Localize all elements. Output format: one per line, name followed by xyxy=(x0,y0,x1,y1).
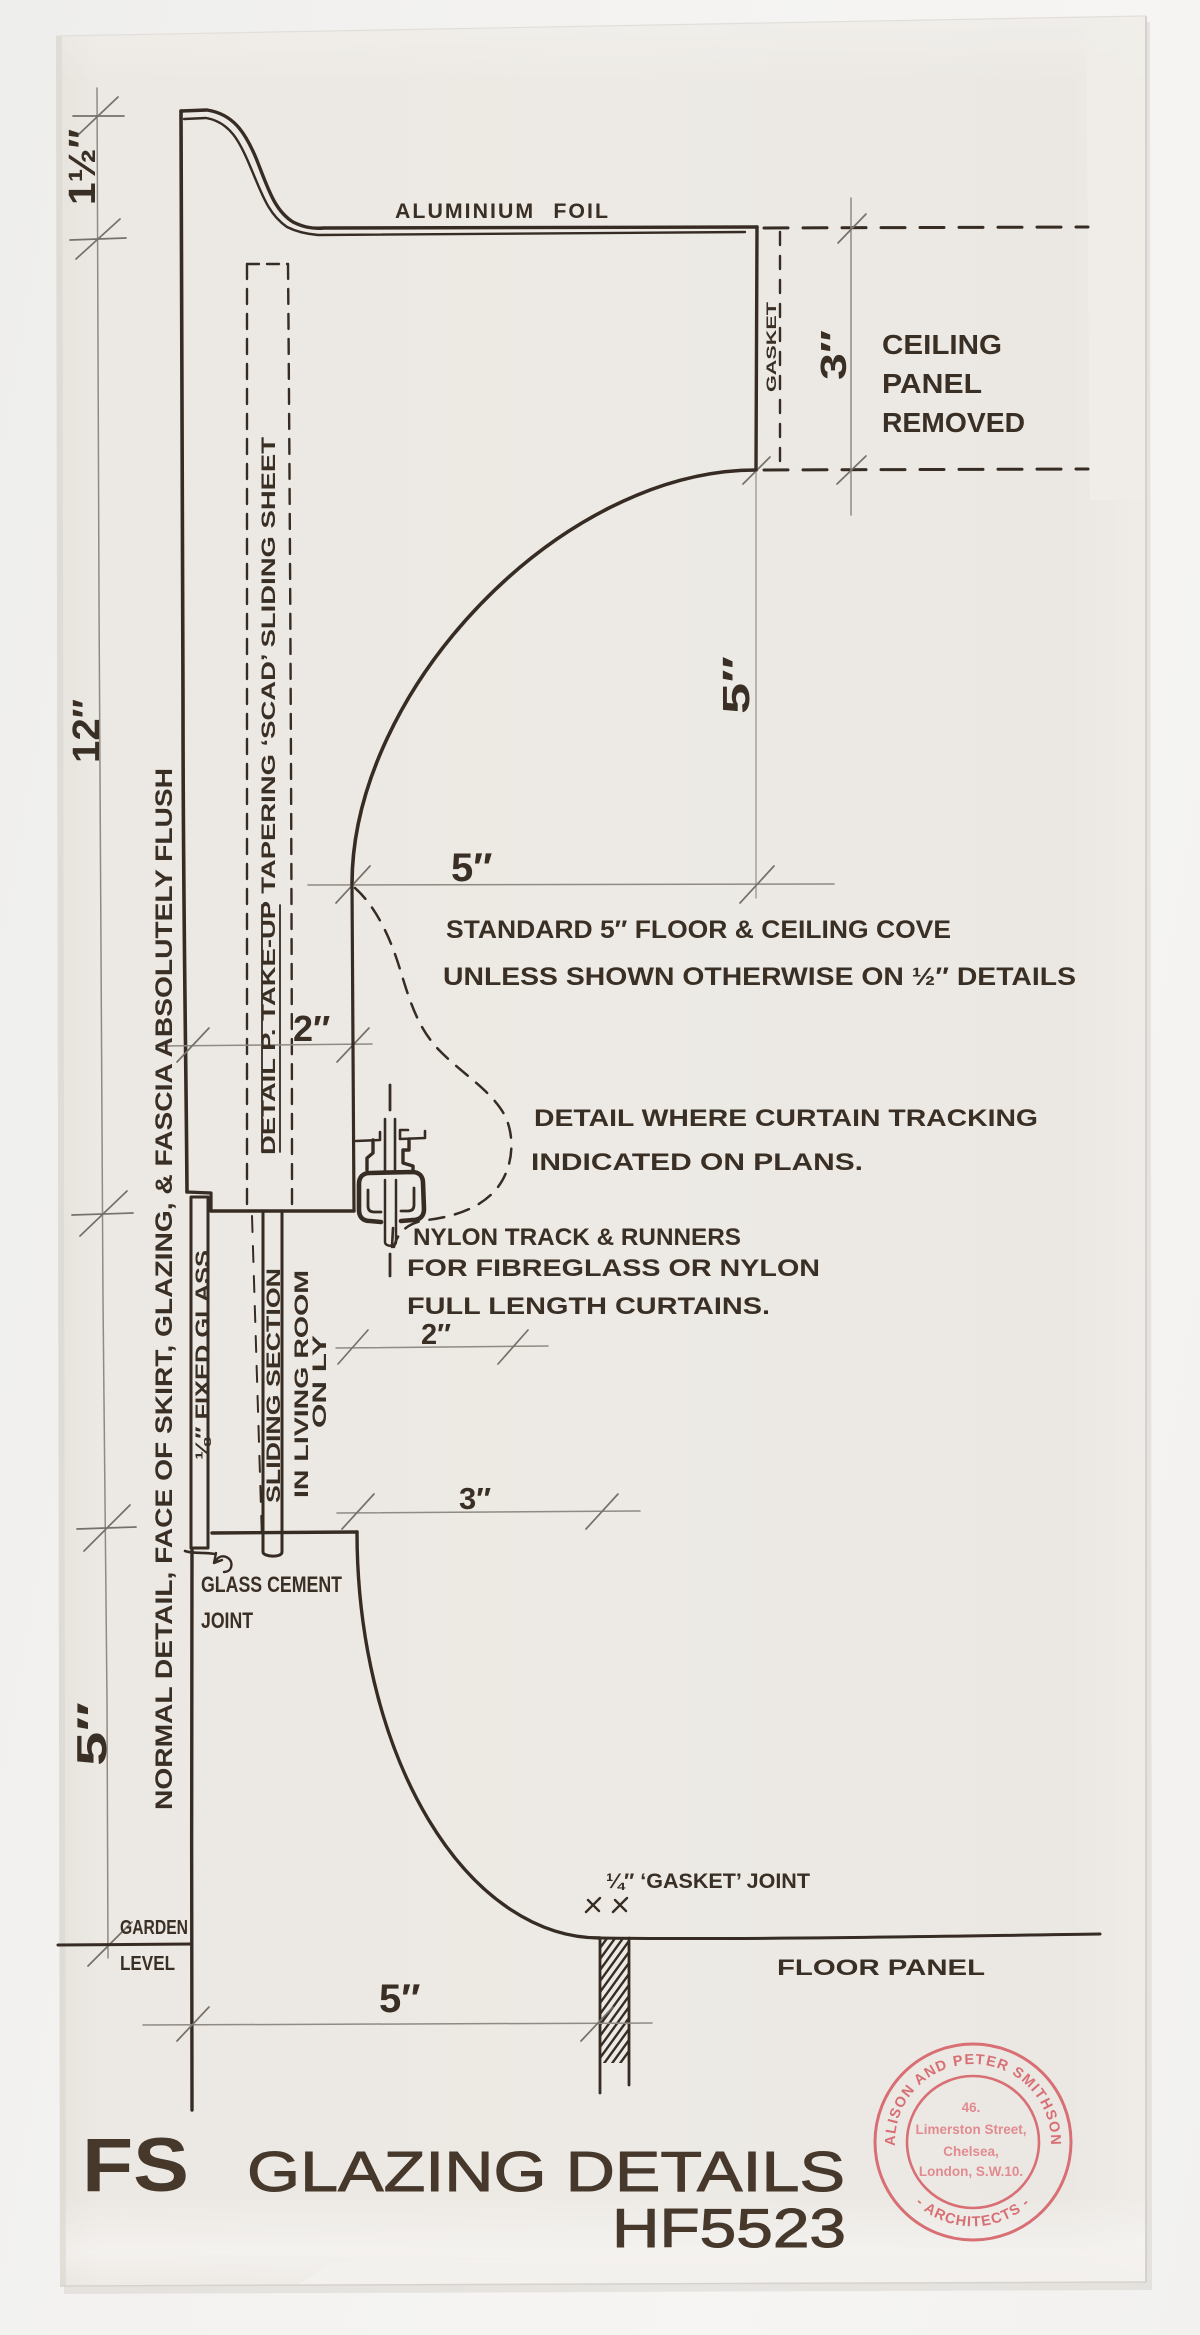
svg-text:GLASS CEMENT: GLASS CEMENT xyxy=(201,1572,342,1597)
svg-text:Chelsea,: Chelsea, xyxy=(943,2144,999,2159)
svg-text:UNLESS SHOWN OTHERWISE ON ½″ D: UNLESS SHOWN OTHERWISE ON ½″ DETAILS xyxy=(443,963,1076,991)
svg-text:1½″: 1½″ xyxy=(62,129,104,205)
svg-text:NYLON TRACK & RUNNERS: NYLON TRACK & RUNNERS xyxy=(413,1224,741,1251)
svg-text:CEILING: CEILING xyxy=(882,329,1002,360)
svg-text:FLOOR PANEL: FLOOR PANEL xyxy=(777,1955,985,1980)
svg-text:London, S.W.10.: London, S.W.10. xyxy=(919,2164,1023,2179)
svg-text:ALUMINIUM FOIL: ALUMINIUM FOIL xyxy=(395,200,610,223)
svg-text:JOINT: JOINT xyxy=(201,1608,253,1633)
svg-text:DETAIL P. TAKE-UP TAPERING ‘SC: DETAIL P. TAKE-UP TAPERING ‘SCAD’ SLIDIN… xyxy=(259,436,280,1155)
svg-text:GASKET: GASKET xyxy=(763,301,779,392)
svg-text:HF5523: HF5523 xyxy=(612,2197,846,2259)
svg-text:NORMAL DETAIL, FACE OF SKIRT,: NORMAL DETAIL, FACE OF SKIRT, GLAZING, &… xyxy=(151,768,178,1810)
svg-text:FS: FS xyxy=(82,2123,189,2208)
svg-text:2″: 2″ xyxy=(421,1319,451,1351)
svg-text:¼″ ‘GASKET’ JOINT: ¼″ ‘GASKET’ JOINT xyxy=(606,1870,810,1893)
svg-text:STANDARD 5″ FLOOR & CEILING CO: STANDARD 5″ FLOOR & CEILING COVE xyxy=(446,916,951,944)
svg-text:ON LY: ON LY xyxy=(310,1334,331,1428)
svg-text:PANEL: PANEL xyxy=(882,368,982,399)
svg-text:INDICATED ON PLANS.: INDICATED ON PLANS. xyxy=(531,1149,863,1176)
svg-text:5″: 5″ xyxy=(716,656,758,714)
svg-text:2″: 2″ xyxy=(293,1008,330,1049)
svg-text:LEVEL: LEVEL xyxy=(120,1953,175,1975)
svg-text:- ARCHITECTS -: - ARCHITECTS - xyxy=(912,2194,1033,2230)
svg-text:5″: 5″ xyxy=(68,1702,115,1766)
svg-text:REMOVED: REMOVED xyxy=(882,407,1025,438)
svg-text:3″: 3″ xyxy=(813,330,854,380)
svg-text:3″: 3″ xyxy=(459,1481,491,1516)
svg-text:⅛″ FIXED GLASS: ⅛″ FIXED GLASS xyxy=(193,1250,214,1460)
svg-text:46.: 46. xyxy=(962,2100,981,2115)
svg-text:FOR FIBREGLASS OR NYLON: FOR FIBREGLASS OR NYLON xyxy=(407,1255,820,1282)
svg-text:FULL LENGTH CURTAINS.: FULL LENGTH CURTAINS. xyxy=(407,1293,770,1320)
svg-text:GLAZING DETAILS: GLAZING DETAILS xyxy=(247,2140,845,2204)
svg-text:GARDEN: GARDEN xyxy=(120,1917,188,1939)
svg-text:DETAIL WHERE CURTAIN TRACKING: DETAIL WHERE CURTAIN TRACKING xyxy=(534,1105,1038,1132)
svg-text:SLIDING SECTION: SLIDING SECTION xyxy=(264,1268,285,1503)
svg-text:Limerston Street,: Limerston Street, xyxy=(915,2122,1026,2137)
svg-text:5″: 5″ xyxy=(451,846,492,890)
svg-text:12″: 12″ xyxy=(66,699,108,763)
svg-text:5″: 5″ xyxy=(379,1977,420,2021)
